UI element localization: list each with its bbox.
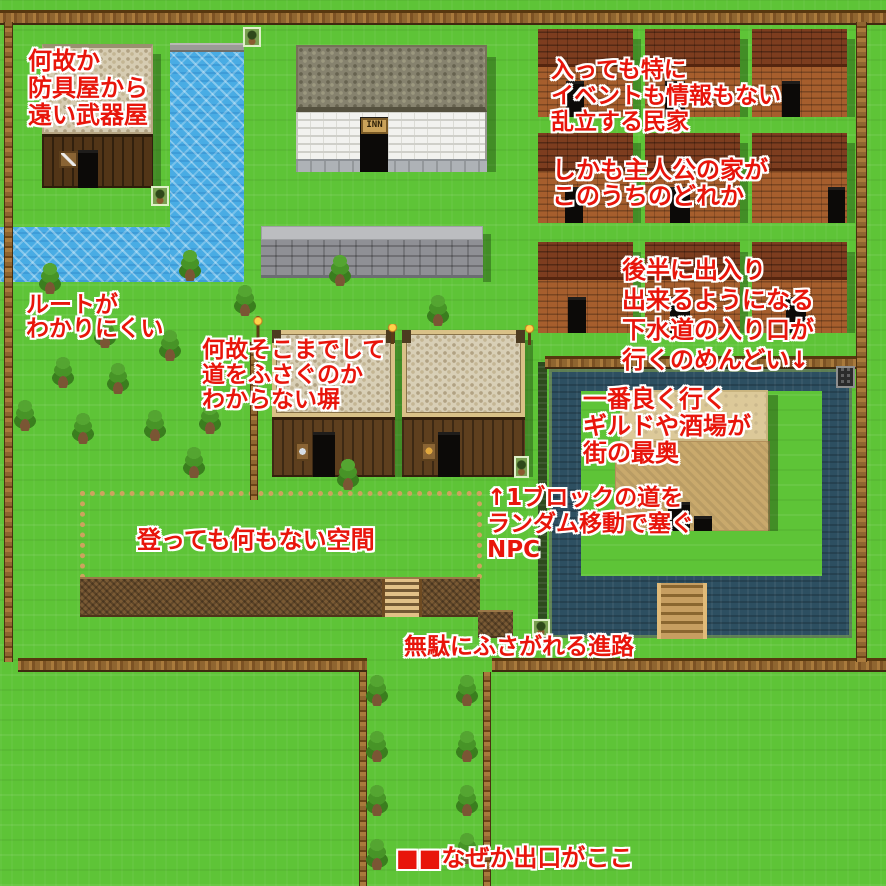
- annotation-guild: 一番良く行く ギルドや酒場が 街の最奥: [583, 386, 751, 467]
- annotation-hero-house: しかも主人公の家が このうちのどれか: [552, 157, 768, 209]
- house-r1c3-door[interactable]: [782, 81, 800, 117]
- annotation-route: ルートが わかりにくい: [26, 293, 164, 341]
- house-r2c3-shadow: [847, 143, 855, 223]
- tree-8: [51, 356, 75, 388]
- npc-2[interactable]: [151, 186, 169, 206]
- annotation-empty-space: 登っても何もない空間: [137, 527, 375, 554]
- inn-shadow: [487, 57, 496, 172]
- weapon-shop-shadow: [153, 54, 161, 192]
- lamp-post-3: [523, 325, 536, 345]
- armor-shop-door[interactable]: [313, 432, 335, 477]
- tree-4: [233, 284, 257, 316]
- house-r1c3-shadow: [847, 39, 855, 117]
- bridge[interactable]: [657, 583, 707, 639]
- tree-3: [328, 254, 352, 286]
- annotation-sewer: 後半に出入り 出来るようになる 下水道の入り口が 行くのめんどい↓: [622, 255, 814, 375]
- fence-bottom-right: [492, 658, 886, 672]
- item-shop-door[interactable]: [438, 432, 460, 477]
- armor-shop-shadow: [395, 340, 402, 477]
- stone-wall-top: [261, 226, 483, 240]
- tree-20: [455, 674, 479, 706]
- annotation-houses: 入っても特に イベントも情報もない 乱立する民家: [551, 57, 781, 135]
- tree-19: [365, 838, 389, 870]
- house-r3c1-roof: [538, 242, 633, 280]
- stone-wall: [261, 240, 483, 278]
- house-r3c3-shadow: [847, 252, 855, 333]
- annotation-npc-block: ↑1ブロックの道を ランダム移動で塞ぐ NPC: [487, 485, 694, 563]
- tree-18: [365, 784, 389, 816]
- tree-10: [13, 399, 37, 431]
- inn-roof: [296, 45, 487, 112]
- tree-15: [336, 458, 360, 490]
- weapon-shop-door[interactable]: [78, 150, 98, 188]
- tree-17: [365, 730, 389, 762]
- fence-top: [0, 10, 886, 25]
- item-shop-sign: [421, 442, 437, 461]
- tree-1: [38, 262, 62, 294]
- tree-7: [426, 294, 450, 326]
- npc-3[interactable]: [514, 456, 529, 478]
- fence-bottom-left: [18, 658, 367, 672]
- tree-14: [182, 446, 206, 478]
- inn-wall: [296, 112, 487, 159]
- inn-sign: INN: [361, 118, 388, 134]
- courtyard-gap-2: [694, 516, 712, 531]
- river-lip: [170, 43, 244, 52]
- armor-shop-sign: [295, 442, 310, 461]
- fence-left: [4, 22, 13, 662]
- annotation-blocked-path: 無駄にふさがれる進路: [404, 634, 634, 660]
- house-r3c1-door[interactable]: [568, 297, 586, 333]
- weapon-shop-sign: [59, 151, 78, 168]
- river: [170, 52, 244, 282]
- sewer-grate[interactable]: [836, 366, 855, 388]
- item-shop-roof: [402, 330, 525, 417]
- tree-22: [455, 784, 479, 816]
- tree-2: [178, 249, 202, 281]
- inn-base: [296, 159, 487, 172]
- water-inlet: [0, 227, 170, 282]
- tree-11: [71, 412, 95, 444]
- tree-21: [455, 730, 479, 762]
- tree-12: [143, 409, 167, 441]
- town-map: INN何故か 防具屋から 遠い武器屋入っても特に イベントも情報もない 乱立する…: [0, 0, 886, 886]
- annotation-weapon-shop: 何故か 防具屋から 遠い武器屋: [28, 48, 148, 129]
- lamp-post-2: [386, 324, 399, 344]
- tree-9: [106, 362, 130, 394]
- house-r2c3-door[interactable]: [828, 187, 845, 223]
- fence-right: [856, 22, 867, 662]
- npc-1[interactable]: [243, 27, 261, 47]
- stone-wall-shadow: [483, 234, 491, 282]
- tree-16: [365, 674, 389, 706]
- courtyard-shadow: [768, 395, 778, 531]
- annotation-wall: 何故そこまでして 道をふさぐのか わからない塀: [202, 338, 385, 413]
- ladder[interactable]: [382, 579, 422, 617]
- annotation-exit: ■■なぜか出口がここ: [396, 845, 633, 872]
